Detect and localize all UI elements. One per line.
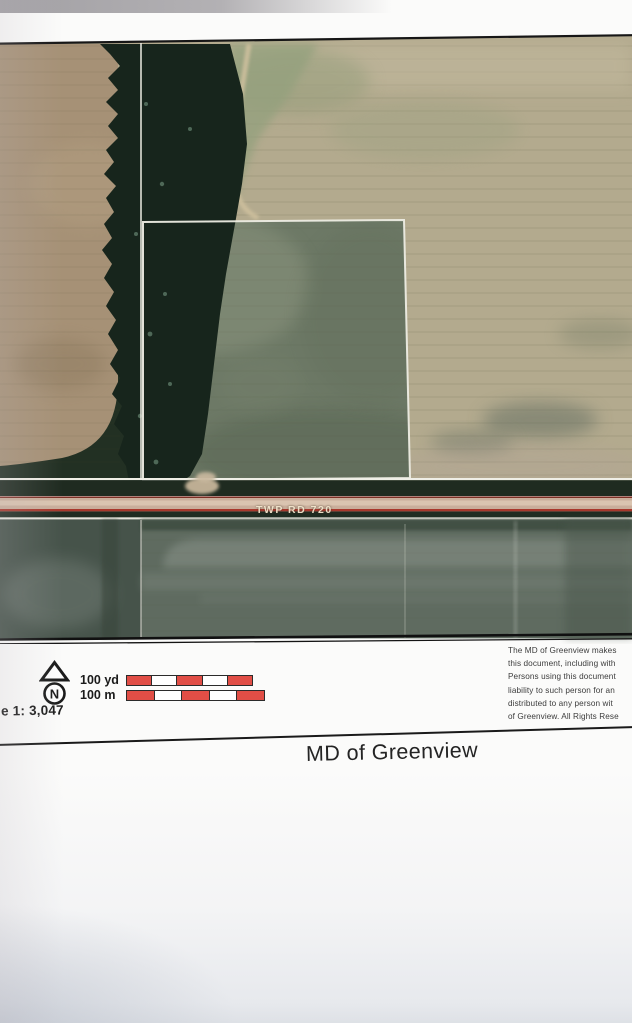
scale-segment [176,676,201,685]
scale-segment [151,676,176,685]
disclaimer-line: this document, including with [508,657,632,670]
scale-bar-yd-label: 100 yd [80,673,119,687]
blank-paper-area [0,770,632,1023]
page-title: MD of Greenview [306,738,479,767]
scale-bar-m [126,690,265,701]
south-fields [0,519,632,638]
scale-ratio-text: e 1: 3,047 [1,702,64,718]
disclaimer-line: of Greenview. All Rights Rese [508,710,632,723]
scale-segment [202,676,227,685]
aerial-map [0,34,632,644]
scale-segment [127,691,154,700]
photo-edge-shadow [0,0,632,13]
disclaimer-line: Persons using this document [508,670,632,683]
north-letter: N [50,686,59,701]
scale-segment [127,676,151,685]
scale-segment [236,691,264,700]
scale-segment [154,691,182,700]
road-name-label: TWP RD 720 [256,504,333,516]
scale-bar-m-label: 100 m [80,688,115,702]
scale-segment [181,691,209,700]
scale-segment [227,676,252,685]
scale-segment [209,691,237,700]
scale-bar-yd [126,675,253,686]
disclaimer-line: The MD of Greenview makes [508,644,632,657]
disclaimer-line: liability to such person for an [508,684,632,697]
disclaimer-line: distributed to any person wit [508,697,632,710]
corner-shadow [0,903,240,1023]
map-frame [0,34,632,644]
scanned-map-page: TWP RD 720 N e 1: 3,047 100 yd 100 m The… [0,0,632,1023]
disclaimer-text: The MD of Greenview makes this document,… [508,644,632,728]
